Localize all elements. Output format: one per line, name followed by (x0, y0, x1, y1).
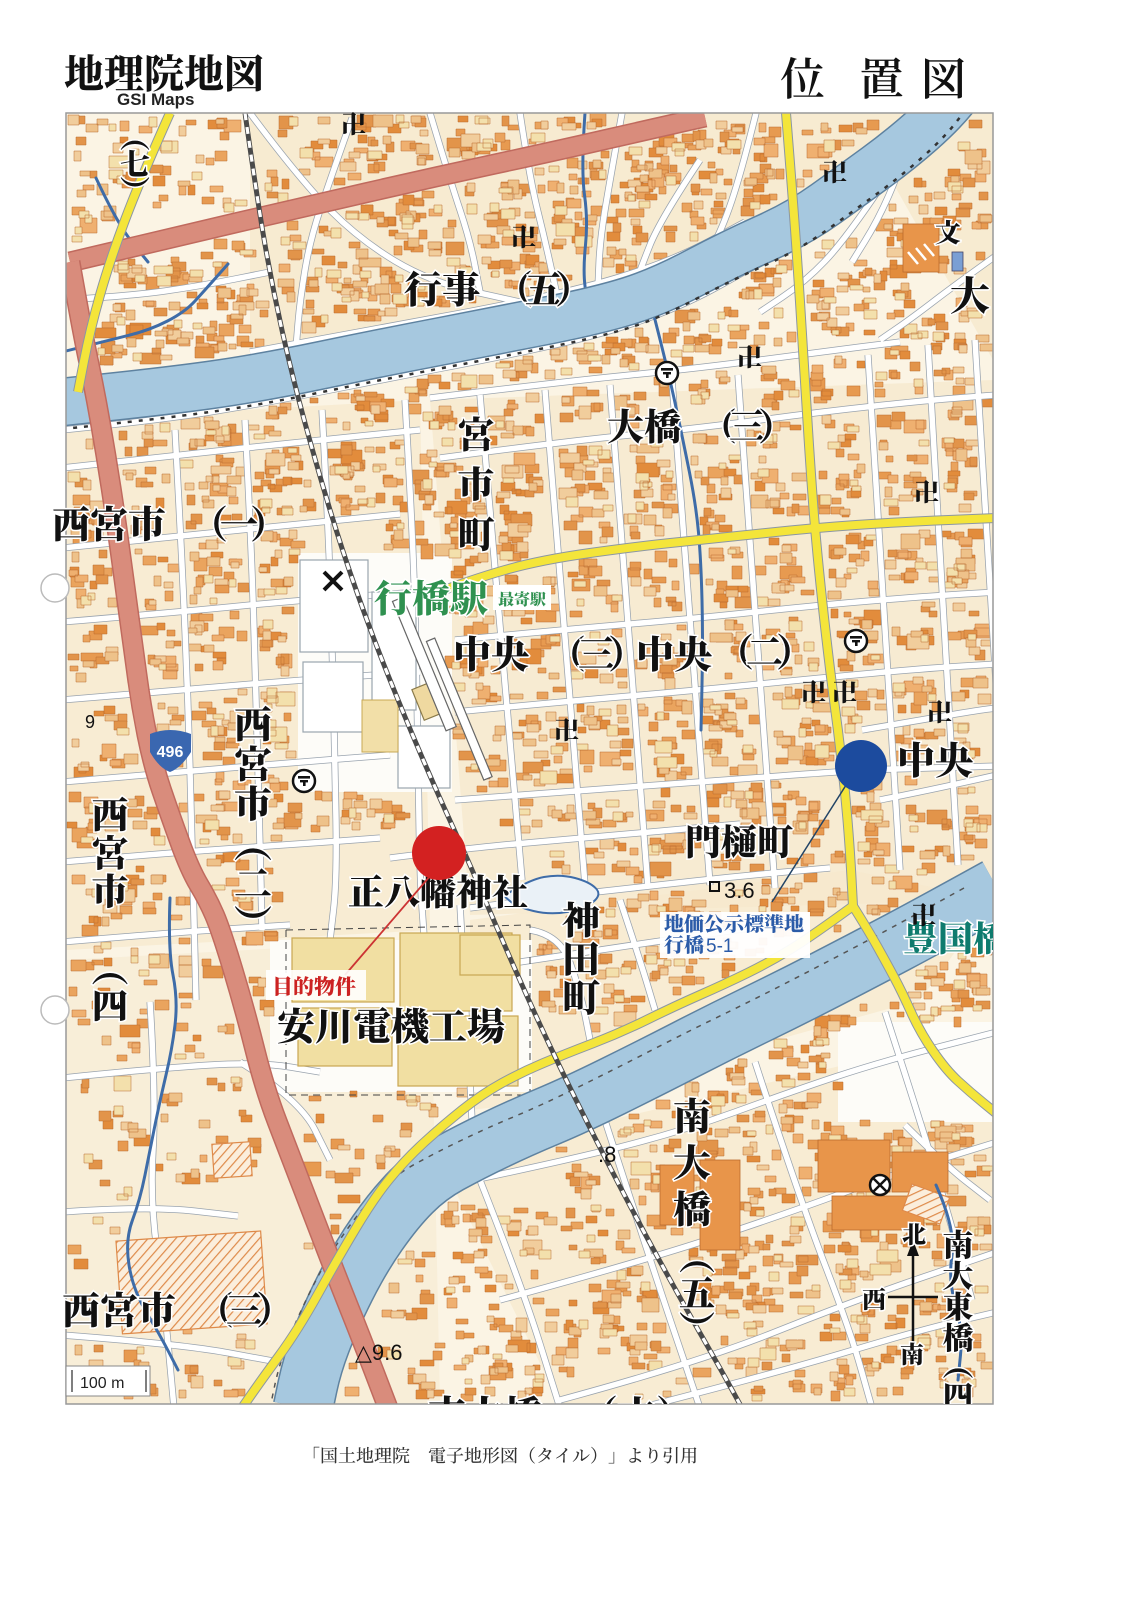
svg-text:△9.6: △9.6 (355, 1340, 403, 1365)
svg-text:9: 9 (85, 712, 95, 732)
svg-text:.8: .8 (598, 1142, 616, 1167)
svg-text:496: 496 (157, 744, 184, 761)
svg-text:3.6: 3.6 (724, 878, 755, 903)
svg-text:5-1: 5-1 (706, 936, 733, 957)
svg-text:GSI Maps: GSI Maps (117, 90, 194, 109)
svg-text:100 m: 100 m (80, 1375, 124, 1392)
